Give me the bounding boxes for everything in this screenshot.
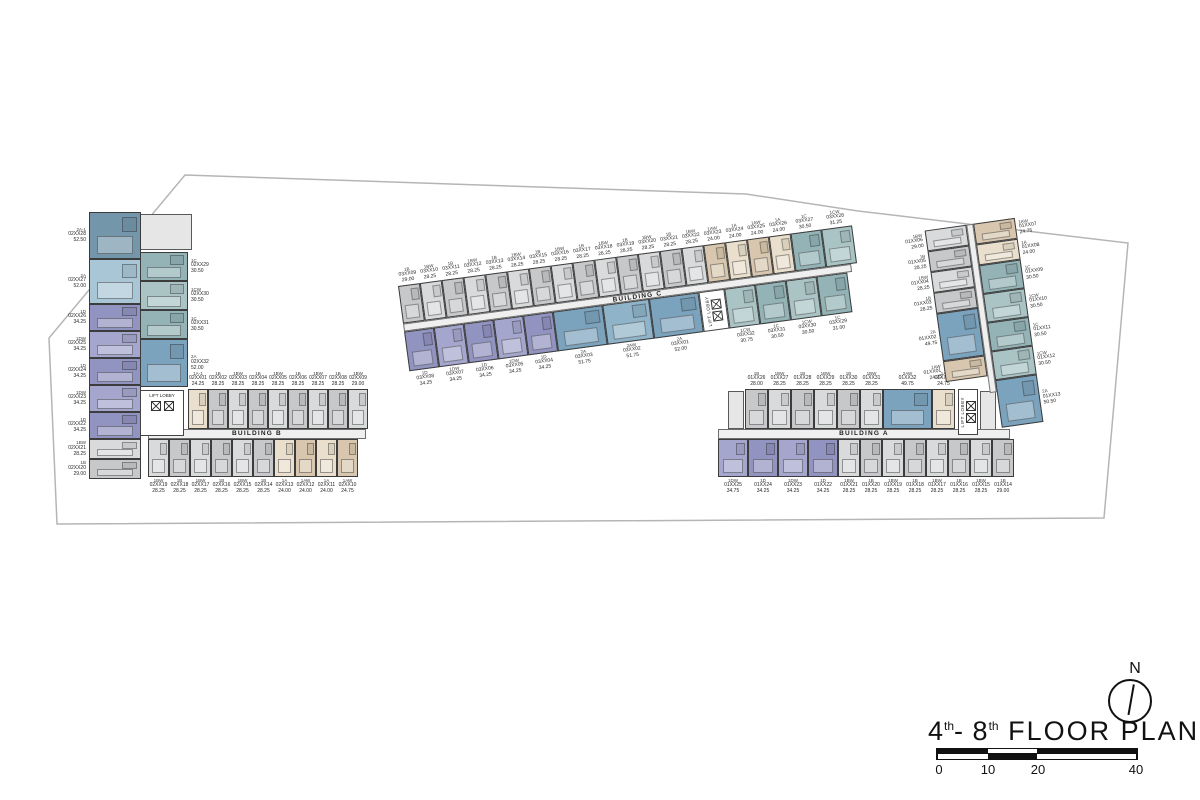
- unit-02xx12: 1AW02XX1224.00: [295, 439, 316, 495]
- unit-area-01xx18: [904, 439, 926, 477]
- unit-area-02xx28: [89, 212, 141, 259]
- building-b-top-row: 1A-102XX0124.251B02XX0228.251BW02XX0328.…: [188, 371, 368, 429]
- unit-01xx31: 1BW01XX3128.25: [860, 371, 883, 429]
- unit-label: 1B01XX1828.25: [904, 477, 926, 495]
- unit-02xx30: 1CW02XX3030.50: [140, 281, 233, 310]
- unit-label: 1BW01XX1928.25: [882, 477, 904, 495]
- building-a-stair: [728, 391, 744, 429]
- unit-label: 1BW01XX3128.25: [860, 371, 883, 389]
- unit-area-01xx16: [948, 439, 970, 477]
- unit-label: 1B01XX2628.00: [745, 371, 768, 389]
- unit-area-01xx26: [745, 389, 768, 429]
- unit-01xx29: 1BW01XX2928.25: [814, 371, 837, 429]
- scale-tick-20: 20: [1031, 762, 1045, 777]
- unit-area-02xx30: [140, 281, 188, 310]
- unit-area-02xx15: [232, 439, 253, 477]
- unit-area-02xx11: [316, 439, 337, 477]
- unit-01xx24: 1D01XX2434.25: [748, 439, 778, 495]
- unit-area-01xx13: [995, 374, 1043, 427]
- unit-02xx07: 1BW02XX0728.25: [308, 371, 328, 429]
- unit-area-02xx27: [89, 259, 141, 304]
- unit-02xx19: 1BW02XX1928.25: [148, 439, 169, 495]
- unit-02xx26: 1D02XX2634.25: [42, 304, 141, 331]
- unit-label: 1BW02XX1528.25: [232, 477, 253, 495]
- unit-02xx16: 1B02XX1628.25: [211, 439, 232, 495]
- unit-label: 1D01XX2234.25: [808, 477, 838, 495]
- unit-label: 1BW02XX1728.25: [190, 477, 211, 495]
- unit-02xx14: 1B02XX1428.25: [253, 439, 274, 495]
- unit-label: 1B02XX1828.25: [169, 477, 190, 495]
- scale-tick-10: 10: [981, 762, 995, 777]
- unit-02xx28: 2A-102XX2852.50: [42, 212, 141, 259]
- unit-area-02xx24: [89, 358, 141, 385]
- unit-area-02xx04: [248, 389, 268, 429]
- unit-area-01xx15: [970, 439, 992, 477]
- unit-02xx01: 1A-102XX0124.25: [188, 371, 208, 429]
- unit-area-02xx13: [274, 439, 295, 477]
- unit-02xx27: 2A02XX2752.00: [42, 259, 141, 304]
- unit-area-01xx01: [943, 355, 988, 382]
- unit-area-02xx19: [148, 439, 169, 477]
- unit-01xx18: 1B01XX1828.25: [904, 439, 926, 495]
- unit-label: 1B02XX0428.25: [248, 371, 268, 389]
- unit-area-03xx29: [816, 272, 852, 316]
- north-indicator: N: [1100, 660, 1160, 723]
- unit-02xx24: 1D02XX2434.25: [42, 358, 141, 385]
- unit-02xx18: 1B02XX1828.25: [169, 439, 190, 495]
- unit-area-02xx01: [188, 389, 208, 429]
- scale-tick-0: 0: [935, 762, 942, 777]
- unit-02xx17: 1BW02XX1728.25: [190, 439, 211, 495]
- building-a-right-wing: 1BW01XX0629.001B01XX0528.251BW01XX0428.2…: [886, 212, 1082, 440]
- unit-area-02xx14: [253, 439, 274, 477]
- unit-area-02xx08: [328, 389, 348, 429]
- unit-label: 1A02XX1124.00: [316, 477, 337, 495]
- unit-label: 1BW01XX2128.25: [838, 477, 860, 495]
- unit-area-01xx17: [926, 439, 948, 477]
- unit-02xx11: 1A02XX1124.00: [316, 439, 337, 495]
- unit-02xx02: 1B02XX0228.25: [208, 371, 228, 429]
- elevator-icon: [711, 298, 722, 309]
- unit-02xx15: 1BW02XX1528.25: [232, 439, 253, 495]
- unit-area-02xx17: [190, 439, 211, 477]
- elevator-icon: [966, 413, 976, 423]
- unit-area-03xx28: [821, 225, 857, 267]
- unit-label: 1B02XX1628.25: [211, 477, 232, 495]
- unit-area-02xx05: [268, 389, 288, 429]
- unit-label: 1D02XX2434.25: [42, 358, 89, 385]
- unit-02xx23: 1DW02XX2334.25: [42, 385, 141, 412]
- unit-01xx15: 1BW01XX1528.25: [970, 439, 992, 495]
- unit-label: 1B02XX1428.25: [253, 477, 274, 495]
- unit-label: 2A01XX0249.75: [898, 314, 943, 367]
- unit-area-02xx03: [228, 389, 248, 429]
- building-a-bottom-row: 1DW01XX2534.751D01XX2434.251DW01XX2334.2…: [718, 439, 1014, 495]
- unit-label: 1B02XX0228.25: [208, 371, 228, 389]
- unit-02xx05: 1BW02XX0528.25: [268, 371, 288, 429]
- unit-area-01xx28: [791, 389, 814, 429]
- building-b-label: BUILDING B: [232, 430, 282, 438]
- unit-label: 1DW01XX2534.75: [718, 477, 748, 495]
- unit-area-03xx01: [649, 292, 704, 338]
- title-rest: FLOOR PLAN: [999, 716, 1200, 746]
- unit-label: 1BW02XX2128.25: [42, 439, 89, 459]
- unit-label: 1D02XX2234.25: [42, 412, 89, 439]
- unit-label: 1B02XX0628.25: [288, 371, 308, 389]
- unit-02xx21: 1BW02XX2128.25: [42, 439, 141, 459]
- unit-area-01xx19: [882, 439, 904, 477]
- building-b-service-room: [140, 214, 192, 250]
- unit-label: 1AW02XX1224.00: [295, 477, 316, 495]
- unit-03xx03: 2A03XX0351.75: [553, 305, 610, 369]
- unit-01xx20: 1B01XX2028.25: [860, 439, 882, 495]
- unit-area-01xx20: [860, 439, 882, 477]
- unit-02xx04: 1B02XX0428.25: [248, 371, 268, 429]
- unit-area-01xx30: [837, 389, 860, 429]
- unit-label: 1BW01XX1528.25: [970, 477, 992, 495]
- unit-02xx13: 1A02XX1324.00: [274, 439, 295, 495]
- unit-02xx09: 1BW02XX0929.00: [348, 371, 368, 429]
- unit-label: 1C02XX2930.50: [188, 252, 233, 281]
- unit-area-01xx14: [992, 439, 1014, 477]
- unit-label: 2A02XX2752.00: [42, 259, 89, 304]
- building-a-lift-lobby: LIFT LOBBY: [958, 389, 978, 435]
- unit-label: 1BW02XX1928.25: [148, 477, 169, 495]
- building-b-bottom-row: 1BW02XX1928.251B02XX1828.251BW02XX1728.2…: [148, 439, 358, 495]
- unit-area-02xx09: [348, 389, 368, 429]
- unit-area-02xx10: [337, 439, 358, 477]
- unit-area-01xx24: [748, 439, 778, 477]
- unit-01xx21: 1BW01XX2128.25: [838, 439, 860, 495]
- title-to: - 8: [954, 716, 989, 746]
- unit-01xx19: 1BW01XX1928.25: [882, 439, 904, 495]
- unit-01xx22: 1D01XX2234.25: [808, 439, 838, 495]
- unit-01xx16: 1B01XX1628.25: [948, 439, 970, 495]
- unit-label: 1AW01XX0124.25: [904, 361, 946, 387]
- unit-area-02xx25: [89, 331, 141, 358]
- unit-label: 1B02XX0828.25: [328, 371, 348, 389]
- building-a-label: BUILDING A: [839, 430, 889, 438]
- unit-area-02xx29: [140, 252, 188, 281]
- unit-01xx28: 1B01XX2828.25: [791, 371, 814, 429]
- unit-label: 1BW02XX0929.00: [348, 371, 368, 389]
- lift-lobby-label: LIFT LOBBY: [960, 397, 965, 427]
- unit-area-02xx21: [89, 439, 141, 459]
- unit-area-01xx29: [814, 389, 837, 429]
- building-b-mid-wing: 1C02XX2930.501CW02XX3030.501C02XX3130.50…: [140, 252, 233, 387]
- building-b-left-wing: 2A-102XX2852.502A02XX2752.001D02XX2634.2…: [42, 212, 141, 479]
- unit-label: 1D01XX2434.25: [748, 477, 778, 495]
- unit-03xx28: 1CW03XX2831.25: [819, 208, 857, 268]
- unit-label: 2A01XX1350.50: [1037, 369, 1082, 422]
- unit-02xx20: 1B02XX2029.00: [42, 459, 141, 479]
- unit-01xx14: 1B01XX1429.00: [992, 439, 1014, 495]
- unit-area-02xx32: [140, 339, 188, 387]
- unit-area-01xx27: [768, 389, 791, 429]
- unit-02xx08: 1B02XX0828.25: [328, 371, 348, 429]
- unit-label: 1CW02XX3030.50: [188, 281, 233, 310]
- unit-label: 1B01XX3028.25: [837, 371, 860, 389]
- unit-area-02xx20: [89, 459, 141, 479]
- elevator-icon: [164, 401, 174, 411]
- unit-02xx29: 1C02XX2930.50: [140, 252, 233, 281]
- unit-area-01xx31: [860, 389, 883, 429]
- elevator-icon: [151, 401, 161, 411]
- unit-02xx10: 1AW02XX1024.75: [337, 439, 358, 495]
- unit-area-02xx16: [211, 439, 232, 477]
- unit-02xx22: 1D02XX2234.25: [42, 412, 141, 439]
- unit-area-02xx26: [89, 304, 141, 331]
- unit-label: 1DW02XX2334.25: [42, 385, 89, 412]
- unit-label: 1B01XX2028.25: [860, 477, 882, 495]
- unit-label: 1A02XX1324.00: [274, 477, 295, 495]
- unit-01xx17: 1BW01XX1728.25: [926, 439, 948, 495]
- unit-area-01xx22: [808, 439, 838, 477]
- elevator-icon: [966, 401, 976, 411]
- unit-area-01xx02: [936, 308, 984, 361]
- unit-area-02xx06: [288, 389, 308, 429]
- unit-label: 1D02XX2634.25: [42, 304, 89, 331]
- unit-label: 1BW02XX0528.25: [268, 371, 288, 389]
- unit-area-03xx03: [553, 305, 608, 351]
- unit-03xx29: 1C03XX2931.00: [816, 272, 854, 334]
- unit-area-02xx07: [308, 389, 328, 429]
- unit-label: 1C02XX3130.50: [188, 310, 233, 339]
- unit-label: 1DW02XX2534.25: [42, 331, 89, 358]
- unit-area-02xx22: [89, 412, 141, 439]
- unit-label: 1BW02XX0328.25: [228, 371, 248, 389]
- title-to-sup: th: [989, 719, 999, 733]
- unit-area-02xx18: [169, 439, 190, 477]
- scale-bar: 0 10 20 40: [936, 748, 1146, 778]
- north-label: N: [1129, 660, 1141, 678]
- unit-area-03xx27: [791, 230, 827, 272]
- scale-tick-40: 40: [1129, 762, 1143, 777]
- unit-03xx01: 2A03XX0152.00: [649, 292, 706, 356]
- unit-label: 1B01XX2828.25: [791, 371, 814, 389]
- unit-label: 1BW01XX2728.25: [768, 371, 791, 389]
- unit-01xx26: 1B01XX2628.00: [745, 371, 768, 429]
- unit-label: 1A-102XX0124.25: [188, 371, 208, 389]
- unit-03xx02: 2AW03XX0251.75: [602, 299, 656, 363]
- unit-01xx30: 1B01XX3028.25: [837, 371, 860, 429]
- building-c-lift-lobby: LIFT LOBBY: [698, 289, 729, 332]
- unit-area-02xx02: [208, 389, 228, 429]
- unit-01xx25: 1DW01XX2534.75: [718, 439, 748, 495]
- unit-01xx23: 1DW01XX2334.25: [778, 439, 808, 495]
- unit-label: 1BW01XX1728.25: [926, 477, 948, 495]
- unit-label: 1B01XX1628.25: [948, 477, 970, 495]
- unit-label: 1B01XX1429.00: [992, 477, 1014, 495]
- unit-area-02xx31: [140, 310, 188, 339]
- floor-plan-page: { "title_block": { "title_p1": "4", "tit…: [0, 0, 1200, 800]
- unit-02xx03: 1BW02XX0328.25: [228, 371, 248, 429]
- unit-label: 1DW01XX2334.25: [778, 477, 808, 495]
- unit-01xx27: 1BW01XX2728.25: [768, 371, 791, 429]
- unit-area-01xx21: [838, 439, 860, 477]
- unit-area-01xx23: [778, 439, 808, 477]
- lift-lobby-label: LIFT LOBBY: [143, 393, 181, 399]
- unit-02xx25: 1DW02XX2534.25: [42, 331, 141, 358]
- building-b-lift-lobby: LIFT LOBBY: [140, 390, 184, 436]
- unit-label: 2A-102XX2852.50: [42, 212, 89, 259]
- unit-label: 1BW02XX0728.25: [308, 371, 328, 389]
- unit-02xx31: 1C02XX3130.50: [140, 310, 233, 339]
- unit-area-02xx23: [89, 385, 141, 412]
- unit-label: 1BW01XX2928.25: [814, 371, 837, 389]
- page-title: 4th- 8th FLOOR PLAN: [928, 716, 1199, 747]
- unit-label: 1B02XX2029.00: [42, 459, 89, 479]
- unit-area-02xx12: [295, 439, 316, 477]
- elevator-icon: [712, 310, 723, 321]
- unit-02xx06: 1B02XX0628.25: [288, 371, 308, 429]
- unit-label: 1AW02XX1024.75: [337, 477, 358, 495]
- scale-ticks: 0 10 20 40: [936, 762, 1146, 778]
- unit-area-03xx02: [602, 299, 654, 345]
- unit-area-01xx25: [718, 439, 748, 477]
- title-from-sup: th: [944, 719, 954, 733]
- scale-bar-graphic: [936, 748, 1138, 760]
- north-needle: [1127, 684, 1134, 715]
- title-from: 4: [928, 716, 944, 746]
